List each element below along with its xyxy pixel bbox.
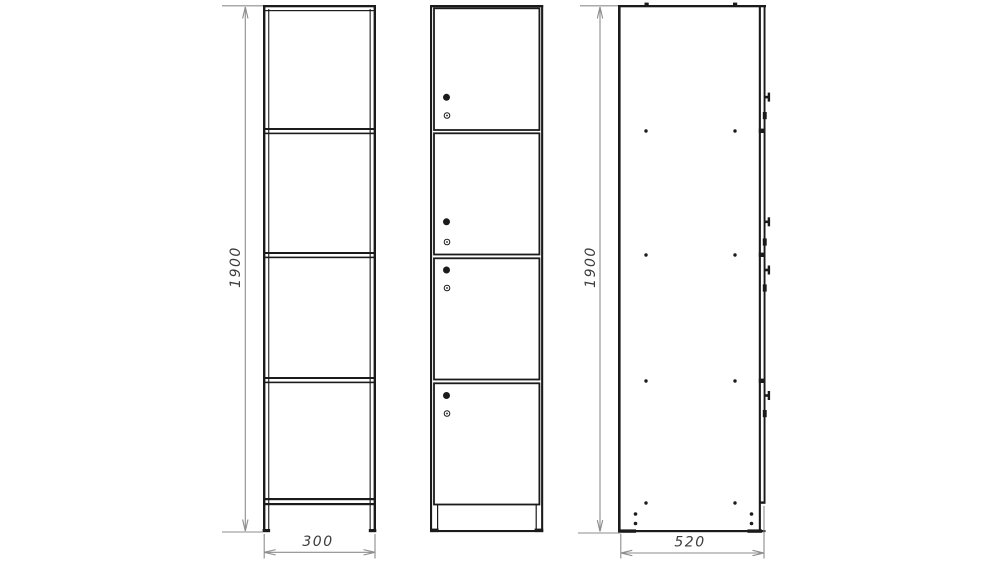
door-panel-4: [434, 383, 539, 504]
door-knob-icon: [443, 218, 450, 225]
screw-dot: [644, 129, 647, 132]
bottom-panel-line: [265, 498, 374, 500]
side-view: [618, 3, 770, 533]
left-wall-line: [430, 5, 432, 532]
shelf-line: [265, 382, 374, 384]
top-fitting: [733, 3, 737, 7]
screw-dot: [634, 512, 638, 516]
knob-profile-icon: [765, 266, 770, 275]
front-doors-view: [430, 5, 543, 532]
shelf-line: [265, 257, 374, 259]
cabinet-technical-drawing: 1900 1900 300 520: [0, 0, 1000, 565]
bottom-panel-line: [618, 530, 766, 532]
bottom-panel-line: [265, 503, 374, 505]
left-foot: [263, 529, 271, 532]
screw-dot: [733, 253, 736, 256]
lock-profile-icon: [763, 284, 767, 291]
screw-dot: [634, 522, 638, 526]
shelf-line: [265, 133, 374, 135]
screw-dot: [733, 379, 736, 382]
plinth-inner-line: [536, 505, 537, 531]
top-fitting: [645, 3, 649, 7]
door-knob-icon: [443, 392, 450, 399]
dimension-height-side: 1900: [578, 6, 621, 533]
plinth-inner-line: [437, 505, 438, 531]
dimension-label-height-front: 1900: [228, 246, 244, 288]
lock-profile-icon: [763, 410, 767, 417]
right-foot: [748, 529, 763, 532]
right-wall-line: [541, 5, 543, 532]
knob-profile-icon: [765, 391, 770, 400]
right-foot: [369, 529, 377, 532]
knob-profile-icon: [765, 93, 770, 102]
right-wall-inner-line: [370, 9, 371, 529]
screw-dot: [644, 253, 647, 256]
door-knob-icon: [443, 94, 450, 101]
door-gap-tick: [759, 379, 766, 383]
technical-drawing-page: 1900 1900 300 520: [0, 0, 1000, 565]
door-gap-tick: [759, 129, 766, 133]
screw-dot: [733, 129, 736, 132]
top-panel-line: [618, 5, 766, 7]
top-panel-inner-line: [265, 10, 374, 11]
right-wall-outer-line: [374, 5, 376, 532]
plinth-bottom-line: [430, 530, 543, 532]
screw-dot: [750, 522, 754, 526]
screw-dot: [644, 379, 647, 382]
door-gap-tick: [759, 253, 766, 257]
dimension-height-front: 1900: [222, 6, 263, 532]
screw-dot: [644, 501, 647, 504]
dimension-width-front: 300: [264, 534, 375, 559]
knob-profile-icon: [765, 217, 770, 226]
top-panel-line: [263, 5, 376, 7]
screw-dot: [750, 512, 754, 516]
door-panel-2: [434, 133, 539, 254]
lock-profile-icon: [763, 112, 767, 119]
back-panel-line: [618, 5, 621, 532]
dimension-label-depth-side: 520: [674, 535, 705, 551]
screw-dot: [733, 501, 736, 504]
door-panel-3: [434, 258, 539, 379]
lock-profile-icon: [763, 238, 767, 245]
top-panel-line: [430, 5, 543, 7]
dimension-label-height-side: 1900: [583, 246, 599, 288]
door-panel-1: [434, 8, 539, 130]
left-wall-outer-line: [263, 5, 265, 532]
dimension-depth-side: 520: [621, 506, 764, 559]
left-wall-inner-line: [268, 9, 269, 529]
left-foot: [618, 529, 636, 532]
left-foot: [430, 529, 439, 533]
shelf-line: [265, 128, 374, 130]
front-edge-line: [759, 5, 761, 532]
door-bottom-cap: [760, 501, 766, 503]
dimension-label-width-front: 300: [302, 534, 333, 550]
front-carcass-view: [263, 5, 377, 532]
door-knob-icon: [443, 267, 450, 274]
shelf-line: [265, 377, 374, 379]
shelf-line: [265, 252, 374, 254]
right-foot: [535, 529, 544, 533]
